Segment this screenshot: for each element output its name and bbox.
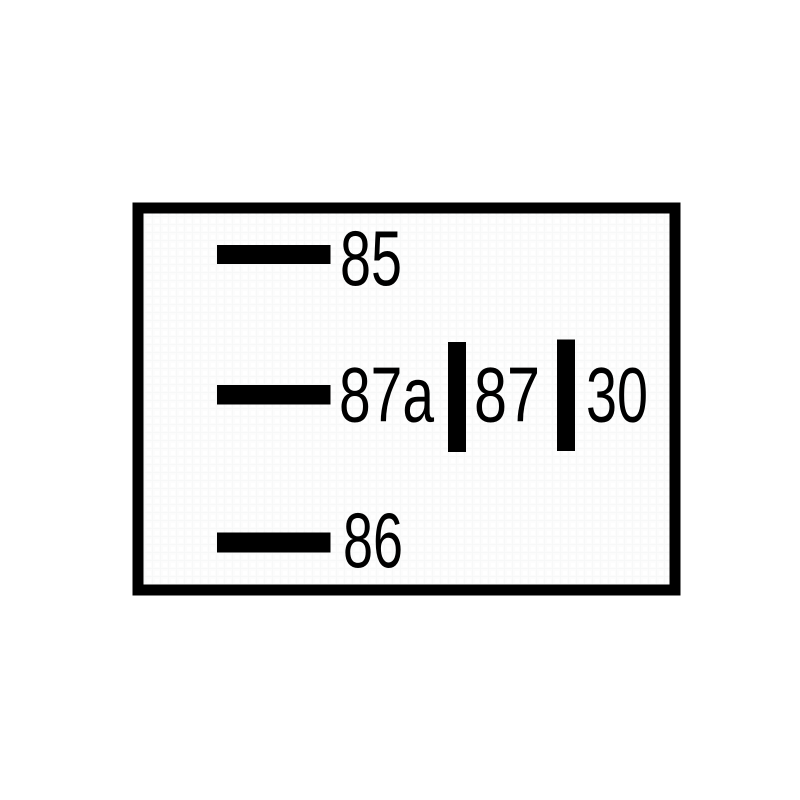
svg-text:87: 87 [474,351,540,439]
svg-text:86: 86 [343,496,403,584]
svg-text:85: 85 [340,214,402,302]
svg-text:87a: 87a [339,351,434,439]
svg-text:30: 30 [586,351,648,439]
